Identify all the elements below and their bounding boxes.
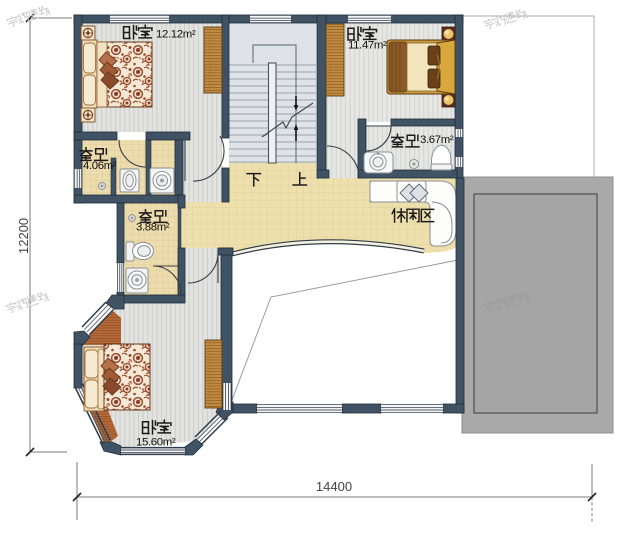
svg-text:12200: 12200 <box>16 218 31 254</box>
svg-text:15.60m²: 15.60m² <box>136 437 176 449</box>
svg-text:11.47m²: 11.47m² <box>348 40 387 52</box>
svg-text:4.06m²: 4.06m² <box>83 160 117 172</box>
svg-text:14400: 14400 <box>316 479 352 494</box>
svg-text:3.67m²: 3.67m² <box>420 134 454 146</box>
svg-text:3.88m²: 3.88m² <box>136 222 170 234</box>
svg-text:12.12m²: 12.12m² <box>156 29 196 41</box>
